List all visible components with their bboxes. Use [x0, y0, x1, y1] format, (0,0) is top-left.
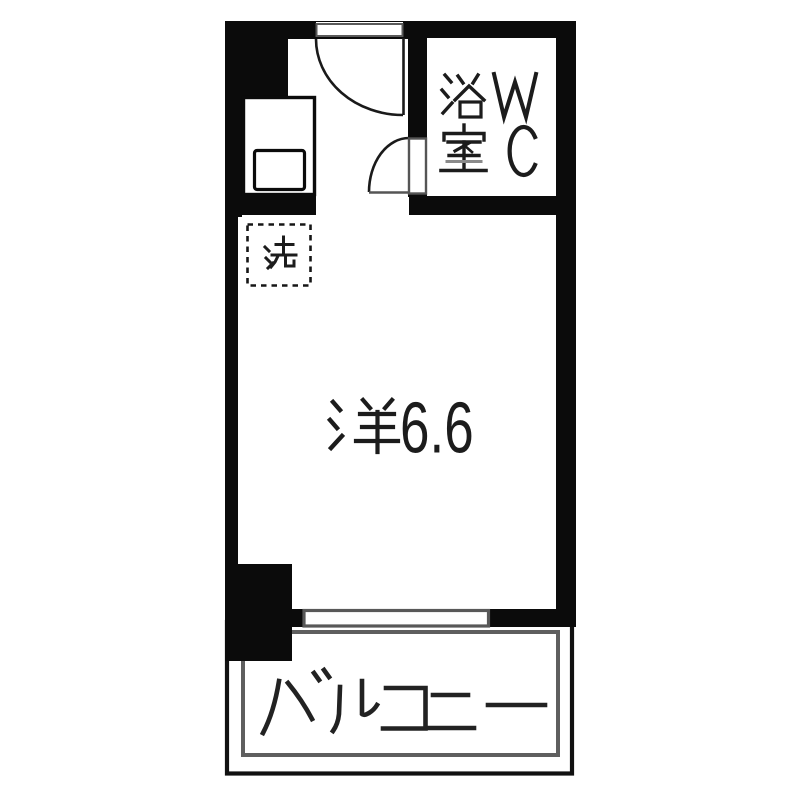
svg-text:6.6: 6.6	[400, 387, 474, 468]
